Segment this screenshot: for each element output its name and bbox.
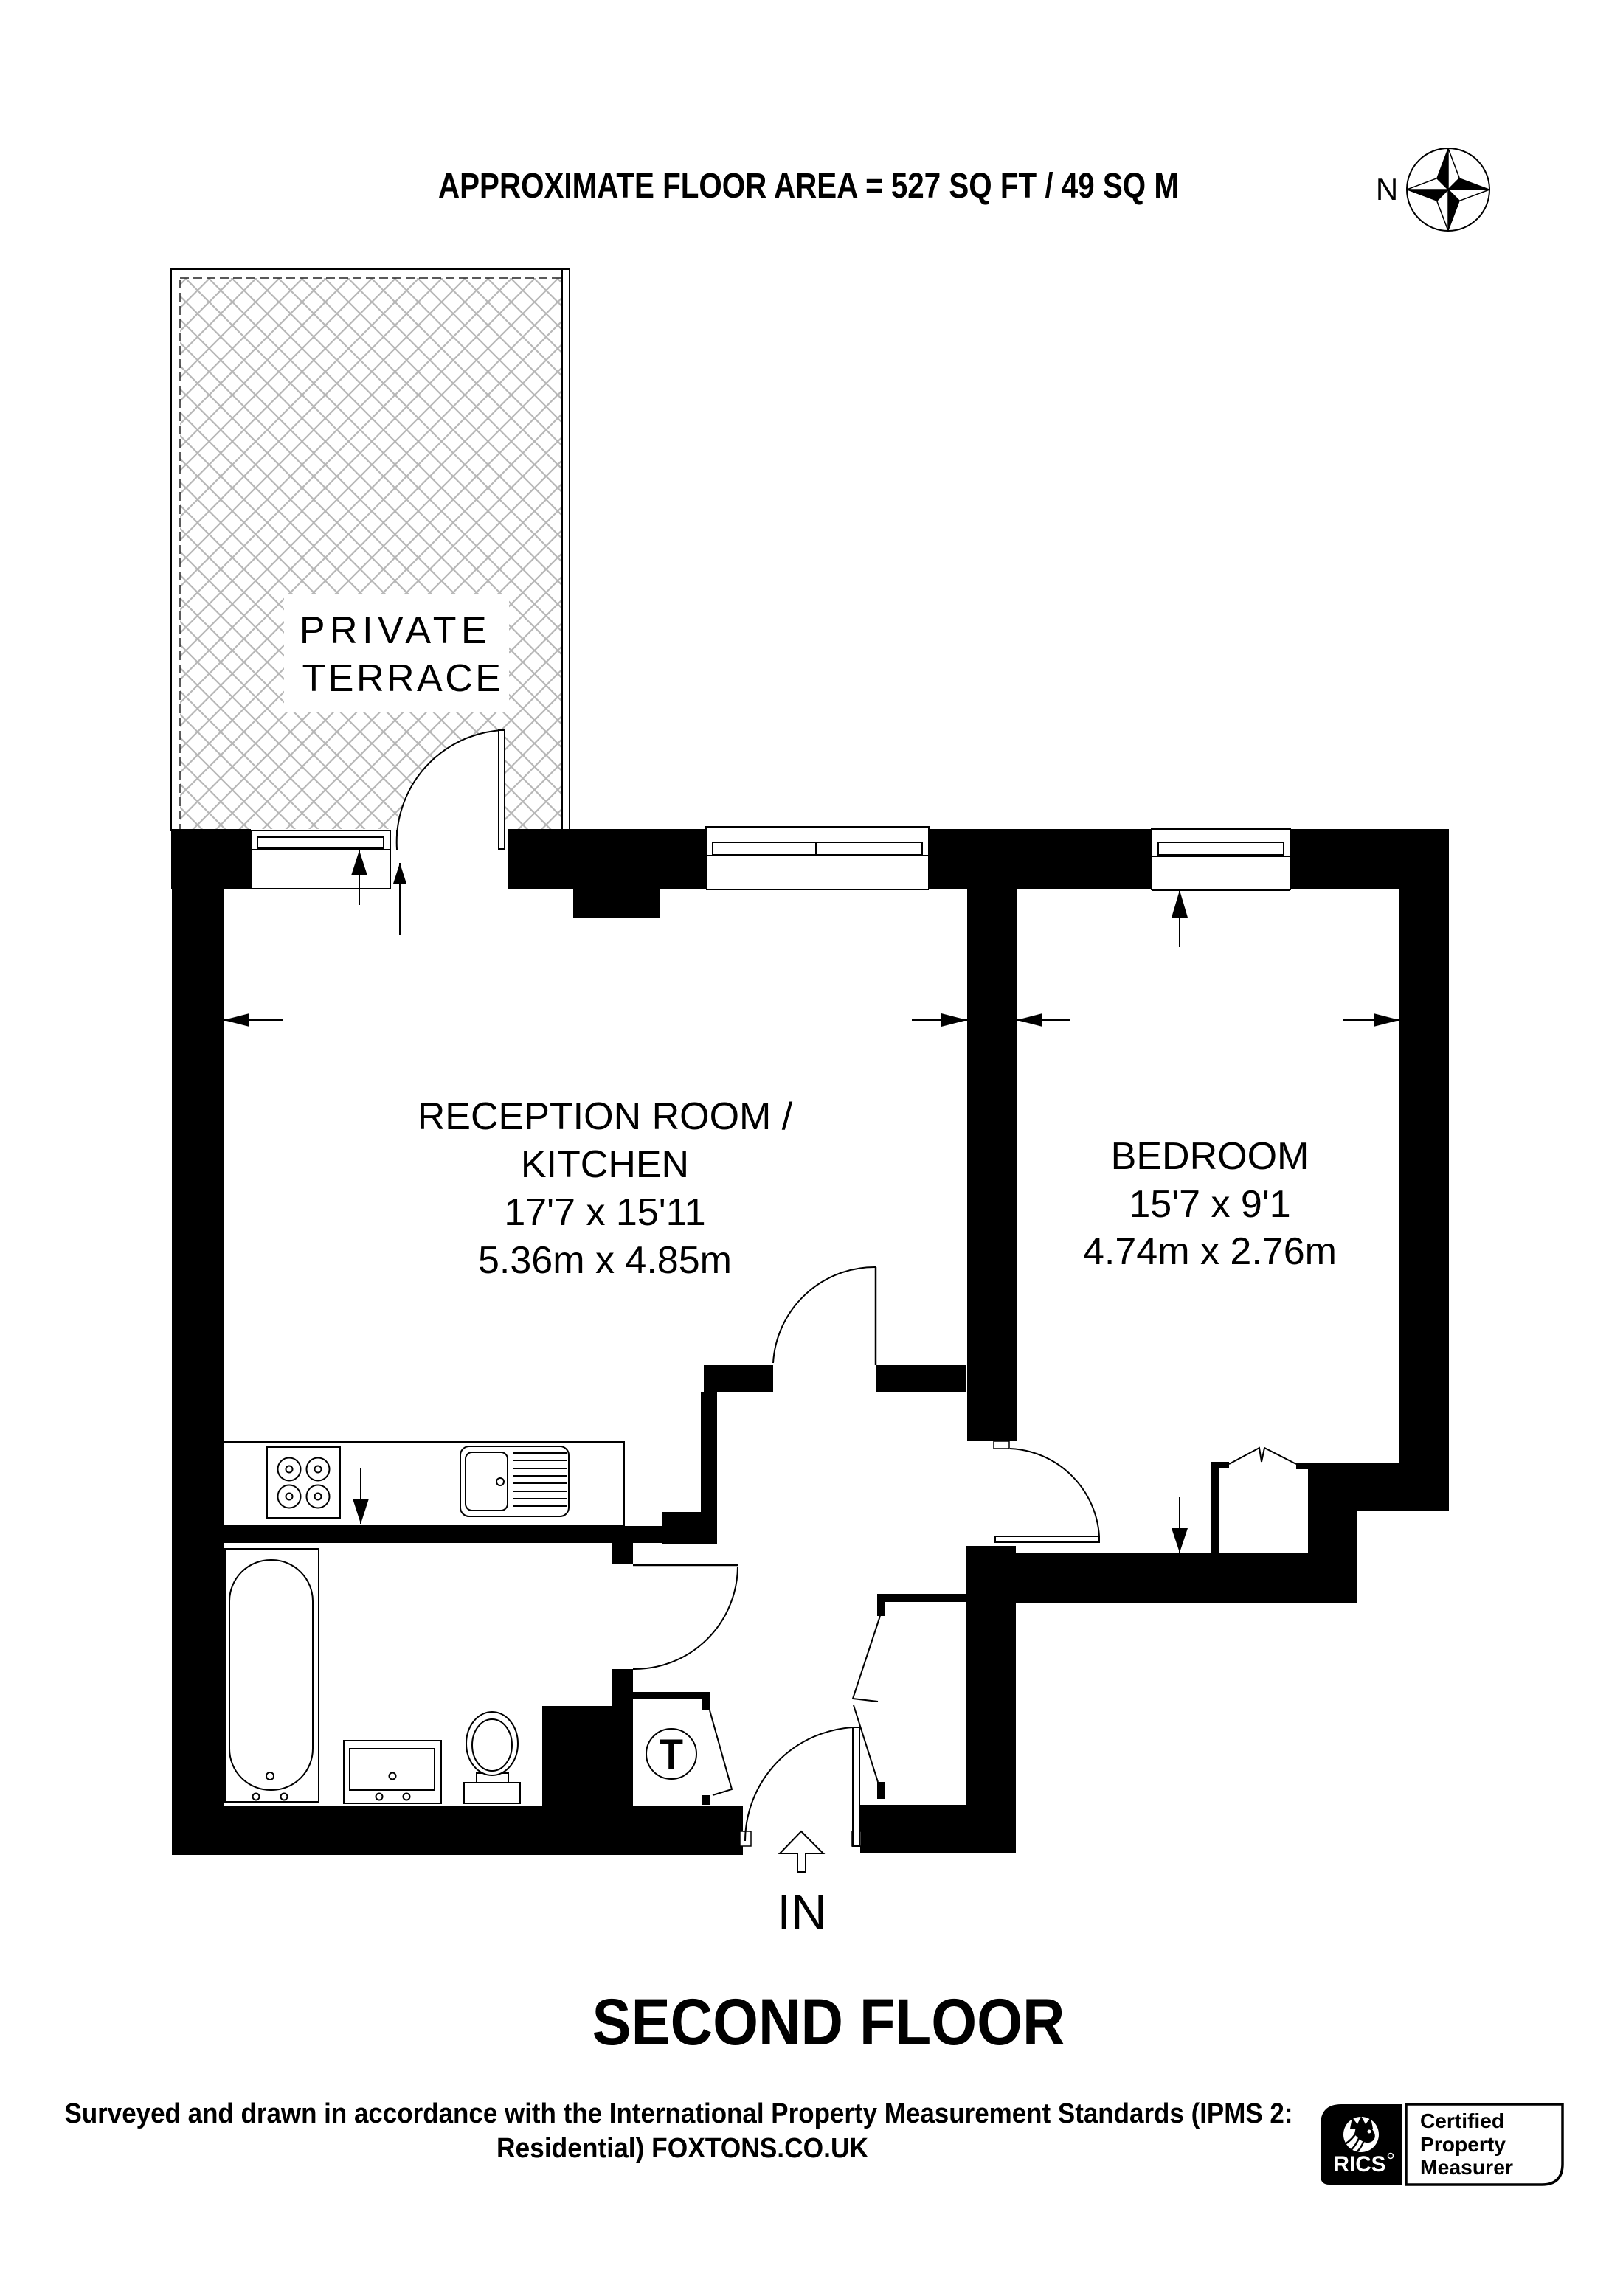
svg-text:IN: IN	[778, 1884, 827, 1940]
svg-text:Property: Property	[1420, 2133, 1506, 2156]
svg-text:15'7 x 9'1: 15'7 x 9'1	[1129, 1183, 1290, 1226]
svg-text:RICS: RICS	[1334, 2152, 1386, 2177]
svg-text:Certified: Certified	[1420, 2109, 1504, 2132]
svg-text:4.74m x 2.76m: 4.74m x 2.76m	[1083, 1230, 1337, 1273]
svg-text:KITCHEN: KITCHEN	[521, 1143, 689, 1186]
svg-text:BEDROOM: BEDROOM	[1111, 1135, 1309, 1178]
svg-text:Residential) FOXTONS.CO.UK: Residential) FOXTONS.CO.UK	[496, 2133, 869, 2164]
svg-text:APPROXIMATE FLOOR AREA = 527 S: APPROXIMATE FLOOR AREA = 527 SQ FT / 49 …	[438, 167, 1179, 206]
svg-text:RECEPTION ROOM /: RECEPTION ROOM /	[418, 1095, 793, 1138]
svg-text:Surveyed and drawn in accordan: Surveyed and drawn in accordance with th…	[65, 2098, 1293, 2129]
svg-text:TERRACE: TERRACE	[302, 657, 504, 700]
svg-text:5.36m x 4.85m: 5.36m x 4.85m	[478, 1239, 732, 1282]
svg-text:Measurer: Measurer	[1420, 2156, 1513, 2179]
svg-text:N: N	[1376, 172, 1398, 207]
svg-text:17'7 x 15'11: 17'7 x 15'11	[504, 1191, 705, 1234]
svg-text:T: T	[660, 1731, 683, 1779]
svg-text:SECOND FLOOR: SECOND FLOOR	[592, 1985, 1065, 2059]
svg-text:PRIVATE: PRIVATE	[300, 609, 491, 652]
